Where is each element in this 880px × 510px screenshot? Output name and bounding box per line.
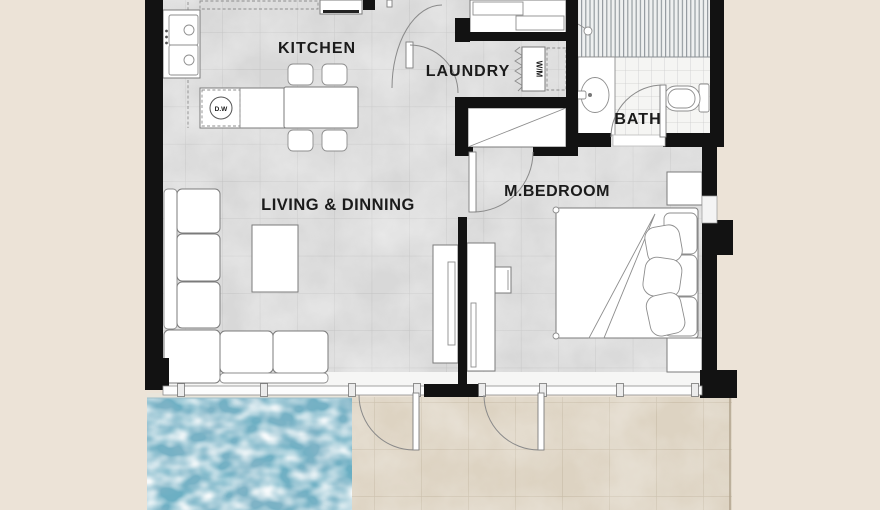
dining-chair	[322, 130, 347, 151]
wall-bedroom-right	[702, 147, 717, 377]
coffee-table	[252, 225, 298, 292]
bedroom-door-leaf	[469, 152, 476, 212]
nightstand-bottom	[667, 338, 702, 372]
pillow	[641, 256, 683, 300]
floor-plan-svg: KITCHEN LAUNDRY BATH LIVING & DINNING M.…	[0, 0, 880, 510]
washing-machine-label: W/M	[535, 61, 544, 78]
tv-bedroom	[495, 267, 511, 293]
sofa-cushion	[220, 331, 273, 373]
wall-bath-right	[710, 0, 724, 147]
sofa-backrest	[164, 189, 177, 329]
wall-closet-bottom	[455, 32, 568, 41]
pool-water-foam	[147, 398, 352, 510]
sofa-front-edge	[220, 373, 328, 383]
closet-sliding-panel	[516, 16, 564, 30]
toilet-tank	[699, 84, 709, 112]
wall-bath-left	[566, 0, 578, 135]
wall-bath-bottom-left	[566, 133, 611, 147]
window-mullion	[349, 384, 356, 397]
wall-bath-bottom-right	[663, 133, 724, 147]
dishwasher-label: D.W	[215, 106, 229, 113]
dining-chair	[288, 64, 313, 85]
window-mullion	[178, 384, 185, 397]
dining-chair	[322, 64, 347, 85]
terrace-door-left-leaf	[413, 393, 419, 450]
stove-knob	[165, 30, 168, 33]
floor-plan-image: KITCHEN LAUNDRY BATH LIVING & DINNING M.…	[0, 0, 880, 510]
sofa-cushion	[177, 234, 220, 281]
wall-corner-bottom-right	[700, 370, 737, 398]
terrace-door-right-leaf	[538, 393, 544, 450]
window-mullion	[261, 384, 268, 397]
bed-post	[553, 207, 559, 213]
window-mullion	[617, 384, 624, 397]
laundry-label: LAUNDRY	[426, 63, 511, 80]
window-mullion	[692, 384, 699, 397]
nightstand-top	[667, 172, 702, 205]
dining-chair	[288, 130, 313, 151]
laundry-door-leaf	[406, 42, 413, 68]
wall-column	[702, 220, 733, 255]
sink-faucet	[577, 91, 586, 99]
sofa-cushion	[177, 189, 220, 233]
window-mullion	[479, 384, 486, 397]
wall-living-bedroom-divider	[458, 217, 467, 387]
master-bedroom-label: M.BEDROOM	[504, 183, 610, 200]
dining-table	[284, 87, 358, 128]
wall-niche	[702, 196, 717, 223]
wall-window-mid-segment	[424, 384, 483, 397]
bath-label: BATH	[614, 111, 661, 128]
sofa-cushion	[273, 331, 328, 373]
shower-head-icon	[584, 27, 592, 35]
entry-door-frame	[387, 0, 392, 7]
bath-door-threshold	[613, 135, 665, 146]
stove-knob	[165, 36, 168, 39]
sofa-corner	[164, 330, 220, 383]
sink-drain	[588, 93, 592, 97]
bed-post	[553, 333, 559, 339]
kitchen-appliance-detail	[323, 10, 359, 13]
sofa-cushion	[177, 282, 220, 328]
kitchen-label: KITCHEN	[278, 40, 356, 57]
wall-laundry-bottom	[455, 97, 568, 108]
wall-left-corner	[145, 358, 169, 390]
living-dining-label: LIVING & DINNING	[261, 196, 415, 214]
wall-entry-stub	[363, 0, 375, 10]
tv-living	[448, 262, 455, 345]
closet-sliding-panel	[473, 2, 523, 15]
shower-floor-hatch	[578, 0, 710, 57]
wall-left-exterior	[145, 0, 163, 390]
wall-bedroom-door-right	[533, 147, 578, 156]
stove-knob	[165, 42, 168, 45]
